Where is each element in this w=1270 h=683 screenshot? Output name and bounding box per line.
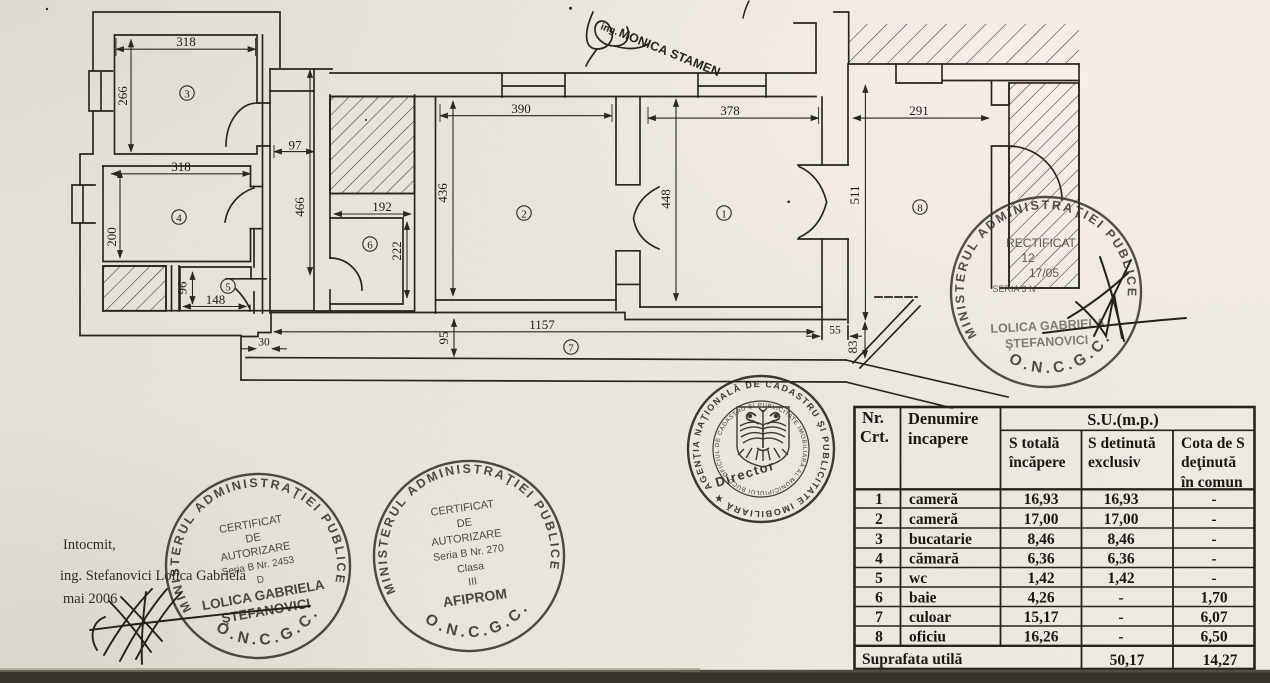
- svg-text:1: 1: [875, 491, 883, 508]
- svg-text:8: 8: [917, 203, 923, 215]
- svg-text:266: 266: [115, 86, 130, 106]
- svg-text:50,17: 50,17: [1110, 652, 1145, 669]
- svg-text:III: III: [467, 575, 477, 588]
- svg-text:7: 7: [568, 343, 574, 355]
- svg-text:3: 3: [875, 531, 883, 548]
- svg-text:cameră: cameră: [909, 491, 958, 508]
- svg-text:16,93: 16,93: [1024, 491, 1059, 508]
- svg-text:17,00: 17,00: [1024, 511, 1059, 528]
- svg-text:3: 3: [184, 89, 190, 101]
- svg-text:6,07: 6,07: [1200, 609, 1227, 626]
- svg-text:Cota de S: Cota de S: [1181, 435, 1245, 452]
- svg-text:încăpere: încăpere: [1008, 454, 1066, 471]
- svg-text:8: 8: [875, 629, 883, 646]
- svg-text:2: 2: [875, 511, 883, 528]
- svg-text:95: 95: [436, 332, 451, 345]
- svg-text:97: 97: [289, 138, 303, 153]
- svg-text:-: -: [1211, 491, 1216, 508]
- svg-text:511: 511: [847, 185, 862, 204]
- svg-text:4,26: 4,26: [1027, 590, 1054, 607]
- svg-text:-: -: [1118, 609, 1123, 626]
- svg-text:S detinută: S detinută: [1088, 435, 1156, 452]
- svg-text:2: 2: [521, 209, 527, 221]
- svg-text:378: 378: [720, 103, 740, 118]
- svg-text:-: -: [1211, 511, 1216, 528]
- svg-text:cameră: cameră: [909, 511, 958, 528]
- svg-text:-: -: [1211, 570, 1216, 587]
- svg-text:oficiu: oficiu: [909, 629, 946, 646]
- svg-text:6,36: 6,36: [1027, 551, 1054, 568]
- svg-text:culoar: culoar: [909, 609, 951, 626]
- svg-text:1,70: 1,70: [1200, 590, 1227, 607]
- svg-text:14,27: 14,27: [1203, 652, 1238, 669]
- svg-text:1157: 1157: [529, 317, 555, 332]
- svg-text:S.U.(m.p.): S.U.(m.p.): [1087, 410, 1159, 429]
- svg-text:291: 291: [909, 103, 929, 118]
- svg-text:Intocmit,: Intocmit,: [63, 537, 116, 553]
- svg-text:1,42: 1,42: [1107, 570, 1134, 587]
- svg-text:17,00: 17,00: [1104, 511, 1139, 528]
- svg-text:cămară: cămară: [909, 551, 959, 568]
- svg-text:222: 222: [389, 241, 404, 261]
- svg-text:55: 55: [829, 325, 841, 337]
- svg-text:6: 6: [875, 590, 883, 607]
- svg-text:exclusiv: exclusiv: [1088, 454, 1141, 471]
- svg-text:5: 5: [875, 570, 883, 587]
- svg-text:436: 436: [435, 183, 450, 203]
- svg-text:mai 2006: mai 2006: [63, 591, 117, 607]
- svg-text:Crt.: Crt.: [860, 427, 889, 446]
- svg-text:448: 448: [658, 189, 673, 209]
- svg-text:318: 318: [176, 34, 196, 49]
- svg-text:incapere: incapere: [908, 429, 968, 448]
- svg-text:S totală: S totală: [1009, 435, 1060, 452]
- svg-text:466: 466: [292, 197, 307, 217]
- svg-text:-: -: [1211, 551, 1216, 568]
- svg-text:în comun: în comun: [1180, 474, 1243, 491]
- svg-text:1: 1: [721, 209, 727, 221]
- svg-text:-: -: [1118, 590, 1123, 607]
- svg-text:baie: baie: [909, 590, 937, 607]
- svg-text:wc: wc: [909, 570, 927, 587]
- svg-text:8,46: 8,46: [1027, 531, 1054, 548]
- svg-text:Nr.: Nr.: [862, 408, 884, 427]
- svg-text:192: 192: [372, 199, 392, 214]
- svg-text:6: 6: [367, 240, 373, 252]
- svg-text:ing. Stefanovici Lolica Gabrie: ing. Stefanovici Lolica Gabriela: [60, 568, 247, 584]
- svg-text:148: 148: [206, 292, 226, 307]
- svg-text:200: 200: [104, 227, 119, 247]
- svg-text:390: 390: [511, 101, 531, 116]
- svg-text:-: -: [1211, 531, 1216, 548]
- svg-text:6,36: 6,36: [1107, 551, 1134, 568]
- svg-text:-: -: [1118, 629, 1123, 646]
- svg-text:30: 30: [258, 337, 270, 349]
- svg-text:SERIA 3 N: SERIA 3 N: [992, 284, 1035, 294]
- svg-text:4: 4: [875, 551, 883, 568]
- svg-text:deţinută: deţinută: [1181, 454, 1236, 471]
- svg-text:12: 12: [1021, 251, 1035, 265]
- svg-text:16,26: 16,26: [1024, 629, 1059, 646]
- svg-text:5: 5: [225, 282, 231, 294]
- svg-text:83: 83: [845, 341, 860, 354]
- svg-text:17/05: 17/05: [1029, 266, 1059, 280]
- svg-text:318: 318: [171, 159, 191, 174]
- svg-text:7: 7: [875, 609, 883, 626]
- svg-text:1,42: 1,42: [1027, 570, 1054, 587]
- svg-text:96: 96: [175, 281, 190, 295]
- svg-text:6,50: 6,50: [1200, 629, 1227, 646]
- svg-text:15,17: 15,17: [1024, 609, 1059, 626]
- svg-text:DE: DE: [456, 516, 473, 530]
- svg-text:RECTIFICAT: RECTIFICAT: [1006, 236, 1076, 250]
- svg-text:8,46: 8,46: [1107, 531, 1134, 548]
- svg-text:Denumire: Denumire: [908, 409, 978, 428]
- svg-text:4: 4: [176, 213, 182, 225]
- svg-text:Suprafata utilă: Suprafata utilă: [862, 651, 963, 668]
- svg-text:16,93: 16,93: [1104, 491, 1139, 508]
- svg-text:bucatarie: bucatarie: [909, 531, 972, 548]
